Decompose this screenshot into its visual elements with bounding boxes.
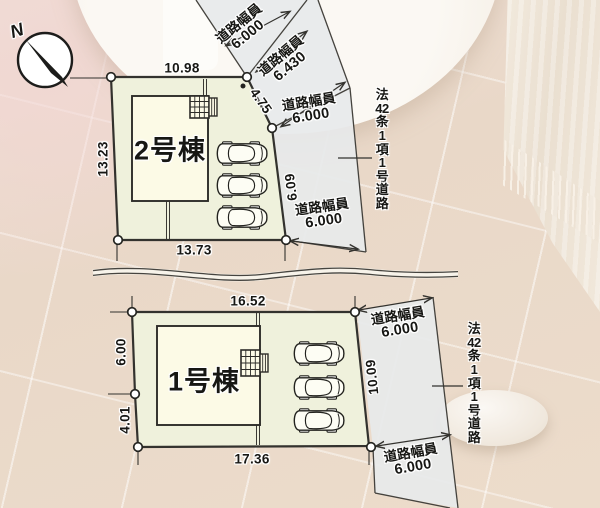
- parking-cars-plot1: [294, 342, 344, 432]
- dimension-plot1-left-lower: 4.01: [118, 406, 133, 433]
- building-1-label: 1号棟: [168, 360, 240, 399]
- dimension-plot1-left-upper: 6.00: [114, 338, 129, 365]
- car-icon: [294, 376, 344, 399]
- break-line: [93, 268, 458, 280]
- site-plan-screenshot: N 10.98 13.23 13.73 4.75 6.09 16.52 6.00…: [0, 0, 600, 508]
- parking-cars-plot2: [217, 142, 267, 229]
- car-icon: [217, 142, 267, 165]
- north-compass-icon: [18, 33, 72, 87]
- dimension-plot1-bottom: 17.36: [234, 452, 269, 467]
- porch-grid-1: [241, 350, 268, 376]
- dimension-plot1-top: 16.52: [230, 294, 265, 309]
- car-icon: [294, 409, 344, 432]
- building-2-label: 2号棟: [134, 129, 206, 168]
- road-designation-lower: 法42条1項1号道路: [467, 322, 480, 444]
- car-icon: [217, 174, 267, 197]
- porch-grid-2: [190, 96, 217, 118]
- utility-pole-dot: [241, 84, 246, 89]
- dimension-plot2-bottom: 13.73: [176, 243, 211, 258]
- car-icon: [217, 206, 267, 229]
- plan-drawing: [0, 0, 600, 508]
- dimension-plot2-left: 13.23: [96, 141, 111, 176]
- dimension-plot2-top: 10.98: [164, 61, 199, 76]
- car-icon: [294, 342, 344, 365]
- road-designation-upper: 法42条1項1号道路: [375, 88, 388, 210]
- dimension-plot2-right: 6.09: [282, 172, 300, 201]
